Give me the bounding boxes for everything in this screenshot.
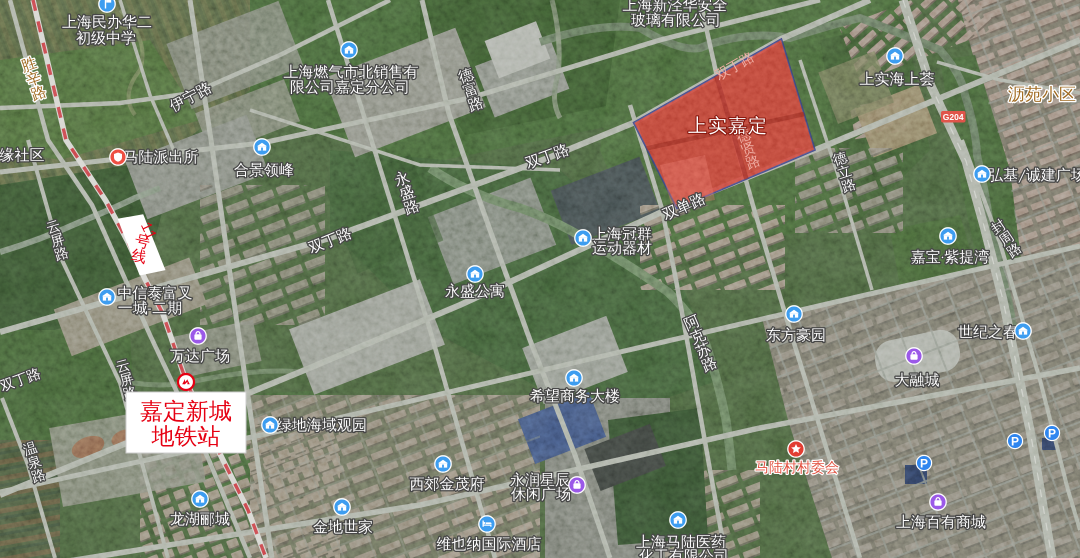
- svg-text:G204: G204: [943, 112, 964, 122]
